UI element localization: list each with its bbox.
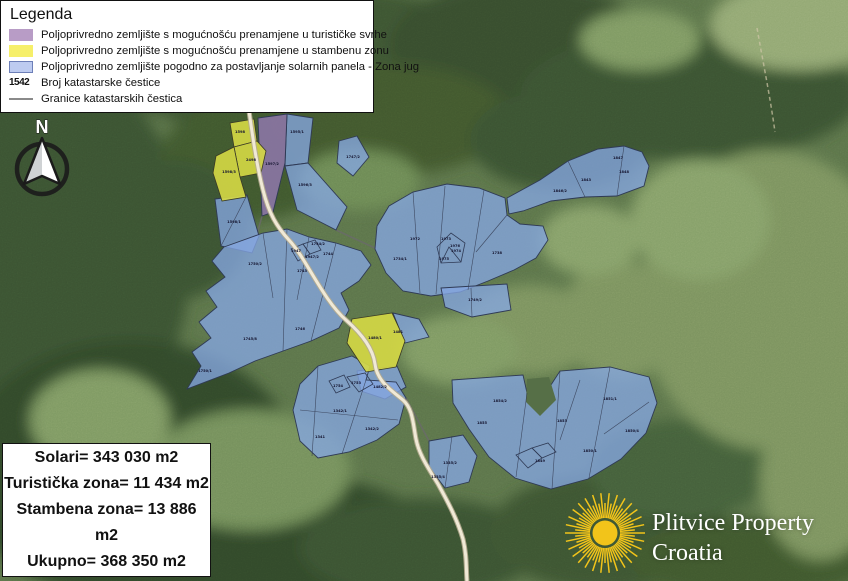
legend-item-parcel-number: 1542 Broj katastarske čestice: [9, 77, 364, 89]
parcel-number-label: 1598/3: [222, 170, 236, 174]
parcel-number-label: 1847: [613, 156, 624, 160]
parcel-number-label: 1482/2: [373, 385, 387, 389]
parcel-number-label: 1595/1: [290, 130, 304, 134]
parcel-number-label: 1598: [235, 130, 246, 134]
stats-line-tourist: Turistička zona= 11 434 m2: [4, 471, 209, 497]
parcel-number-label: 1848: [619, 170, 630, 174]
parcel-number-label: 1749/2: [468, 298, 482, 302]
logo-line-2: Croatia: [652, 538, 814, 568]
parcel-number-label: 1335/2: [443, 461, 457, 465]
parcel-number-label: 1972: [410, 237, 421, 241]
map-export-image: 159824981598/31598/11595/11596/31747/215…: [0, 0, 848, 581]
parcel-number-label: 1854/2: [493, 399, 507, 403]
north-label: N: [36, 117, 49, 137]
parcel-number-label: 2498: [246, 158, 257, 162]
logo-line-1: Plitvice Property: [652, 508, 814, 538]
parcel-number-label: 1753: [351, 381, 362, 385]
parcel-number-label: 1750/2: [248, 262, 262, 266]
tourist-swatch-icon: [9, 29, 33, 41]
parcel-number-label: 1335/4: [431, 475, 445, 479]
parcel-number-label: 1745/8: [243, 337, 257, 341]
parcel-number-label: 1974: [451, 249, 462, 253]
company-logo: Plitvice Property Croatia: [652, 508, 814, 568]
parcel-number-label: 1846/2: [553, 189, 567, 193]
legend-item-residential: Poljoprivredno zemljište s mogućnošću pr…: [9, 45, 364, 57]
legend-panel: Legenda Poljoprivredno zemljište s moguć…: [0, 0, 374, 113]
parcel-number-label: 1341: [315, 435, 326, 439]
legend-item-label: Granice katastarskih čestica: [41, 93, 182, 105]
parcel-number-label: 1975: [439, 257, 450, 261]
parcel-number-label: 1743: [297, 269, 308, 273]
area-summary-panel: Solari= 343 030 m2 Turistička zona= 11 4…: [2, 443, 211, 577]
legend-item-label: Poljoprivredno zemljište s mogućnošću pr…: [41, 45, 389, 57]
parcel-number-label: 1947: [291, 249, 302, 253]
parcel-number-label: 1853: [557, 419, 568, 423]
legend-title: Legenda: [10, 6, 364, 24]
parcel-number-label: 1851/1: [603, 397, 617, 401]
parcel-number-label: 1750/1: [198, 369, 212, 373]
parcel-number-label: 1855: [477, 421, 488, 425]
parcel-number-label: 1850/1: [583, 449, 597, 453]
parcel-number-label: 1481: [393, 330, 404, 334]
boundary-line-icon: [9, 98, 33, 100]
parcel-number-label: 1746: [295, 327, 306, 331]
legend-item-tourist: Poljoprivredno zemljište s mogućnošću pr…: [9, 29, 364, 41]
stats-line-residential: Stambena zona= 13 886 m2: [3, 497, 210, 549]
parcel-number-label: 1850/4: [625, 429, 639, 433]
parcel-number-label: 1973: [441, 237, 452, 241]
parcel-number-label: 1843: [581, 178, 592, 182]
sun-logo-icon: [560, 488, 650, 578]
legend-item-label: Poljoprivredno zemljište s mogućnošću pr…: [41, 29, 387, 41]
parcel-number-label: 1947/2: [305, 255, 319, 259]
parcel-number-label: 1480/1: [368, 336, 382, 340]
parcel-number-label: 1734/1: [393, 257, 407, 261]
parcel-number-label: 1342/1: [333, 409, 347, 413]
parcel-number-label: 1596/3: [298, 183, 312, 187]
residential-swatch-icon: [9, 45, 33, 57]
solar-swatch-icon: [9, 61, 33, 73]
parcel-number-label: 1849: [535, 459, 546, 463]
north-arrow: N: [8, 112, 78, 202]
sun-core: [593, 521, 618, 546]
parcel-number-label: 1598/1: [227, 220, 241, 224]
parcel-number-label: 1342/2: [365, 427, 379, 431]
legend-item-label: Poljoprivredno zemljište pogodno za post…: [41, 61, 419, 73]
legend-item-label: Broj katastarske čestice: [41, 77, 160, 89]
north-arrow-icon: N: [8, 112, 78, 202]
legend-item-solar: Poljoprivredno zemljište pogodno za post…: [9, 61, 364, 73]
parcel-number-label: 1976: [450, 244, 461, 248]
stats-line-total: Ukupno= 368 350 m2: [27, 549, 186, 575]
parcel-number-label: 1597/2: [265, 162, 279, 166]
parcel-number-label: 1747/2: [346, 155, 360, 159]
parcel-number-label: 1754: [333, 384, 344, 388]
parcel-number-sample: 1542: [9, 77, 33, 89]
parcel-number-label: 1744/2: [311, 242, 325, 246]
stats-line-solar: Solari= 343 030 m2: [35, 445, 179, 471]
legend-item-boundaries: Granice katastarskih čestica: [9, 93, 364, 105]
parcel-number-label: 1744: [323, 252, 334, 256]
parcel-number-label: 1738: [492, 251, 503, 255]
